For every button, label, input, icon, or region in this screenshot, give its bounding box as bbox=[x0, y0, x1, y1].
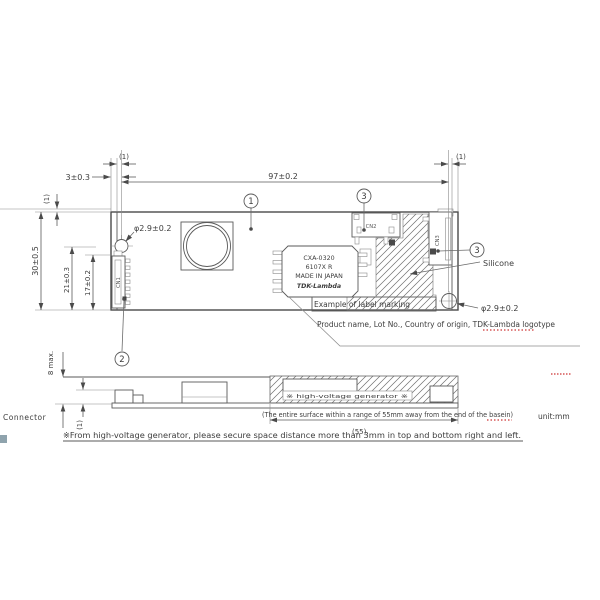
technical-drawing: φ2.9±0.2 CN1 bbox=[0, 0, 600, 600]
hv-zone-text: ※ high-voltage generator ※ bbox=[286, 394, 409, 400]
svg-text:1: 1 bbox=[248, 197, 253, 207]
dim-width: 97±0.2 bbox=[268, 172, 298, 181]
hv-component-2 bbox=[430, 386, 453, 402]
svg-text:3: 3 bbox=[361, 192, 366, 202]
dim-21: 21±0.3 bbox=[63, 267, 71, 293]
dim-8max: 8 max. bbox=[47, 351, 55, 375]
note-range: (The entire surface within a range of 55… bbox=[262, 411, 513, 419]
top-view: φ2.9±0.2 CN1 bbox=[0, 150, 580, 366]
cn1-label: CN1 bbox=[116, 277, 122, 288]
edge-artifact bbox=[0, 435, 7, 443]
chip-lot: 6107X R bbox=[306, 264, 333, 271]
hole-left-dim: φ2.9±0.2 bbox=[134, 224, 171, 233]
side-view: ※ high-voltage generator ※ 8 max. (1) (5… bbox=[3, 351, 572, 436]
dim-height: 30±0.5 bbox=[31, 246, 40, 276]
note-clearance: ※From high-voltage generator, please sec… bbox=[63, 431, 521, 440]
silicone-label: Silicone bbox=[483, 259, 514, 268]
cn3-label: CN3 bbox=[435, 235, 441, 246]
chip-model: CXA-0320 bbox=[303, 255, 334, 262]
dim-side-tiny: (1) bbox=[76, 420, 84, 430]
cn2-label: CN2 bbox=[366, 224, 377, 230]
dim-tiny-left: (1) bbox=[119, 153, 129, 161]
unit-label: unit:mm bbox=[538, 412, 570, 421]
label-chip: CXA-0320 6107X R MADE IN JAPAN TDK-Lambd… bbox=[273, 246, 371, 297]
dim-17: 17±0.2 bbox=[84, 270, 92, 296]
dim-tiny-right: (1) bbox=[456, 153, 466, 161]
dim-left-offset: 3±0.3 bbox=[65, 173, 90, 182]
side-components bbox=[115, 382, 227, 403]
pcb-side bbox=[112, 403, 458, 408]
connector-side-label: Connector bbox=[3, 413, 47, 422]
footer-notes: (The entire surface within a range of 55… bbox=[0, 411, 570, 443]
label-description: Product name, Lot No., Country of origin… bbox=[317, 320, 555, 329]
hole-right-leader bbox=[457, 304, 478, 309]
label-marking-text: Example of label marking bbox=[314, 300, 410, 309]
transformer bbox=[181, 222, 233, 270]
chip-origin: MADE IN JAPAN bbox=[295, 273, 343, 280]
dim-tiny-edge: (1) bbox=[43, 194, 51, 204]
svg-text:3: 3 bbox=[474, 246, 479, 256]
hole-right-dim: φ2.9±0.2 bbox=[481, 304, 518, 313]
chip-logo: TDK-Lambda bbox=[297, 283, 341, 290]
svg-text:2: 2 bbox=[119, 355, 124, 365]
technical-drawing-page: φ2.9±0.2 CN1 bbox=[0, 0, 600, 600]
